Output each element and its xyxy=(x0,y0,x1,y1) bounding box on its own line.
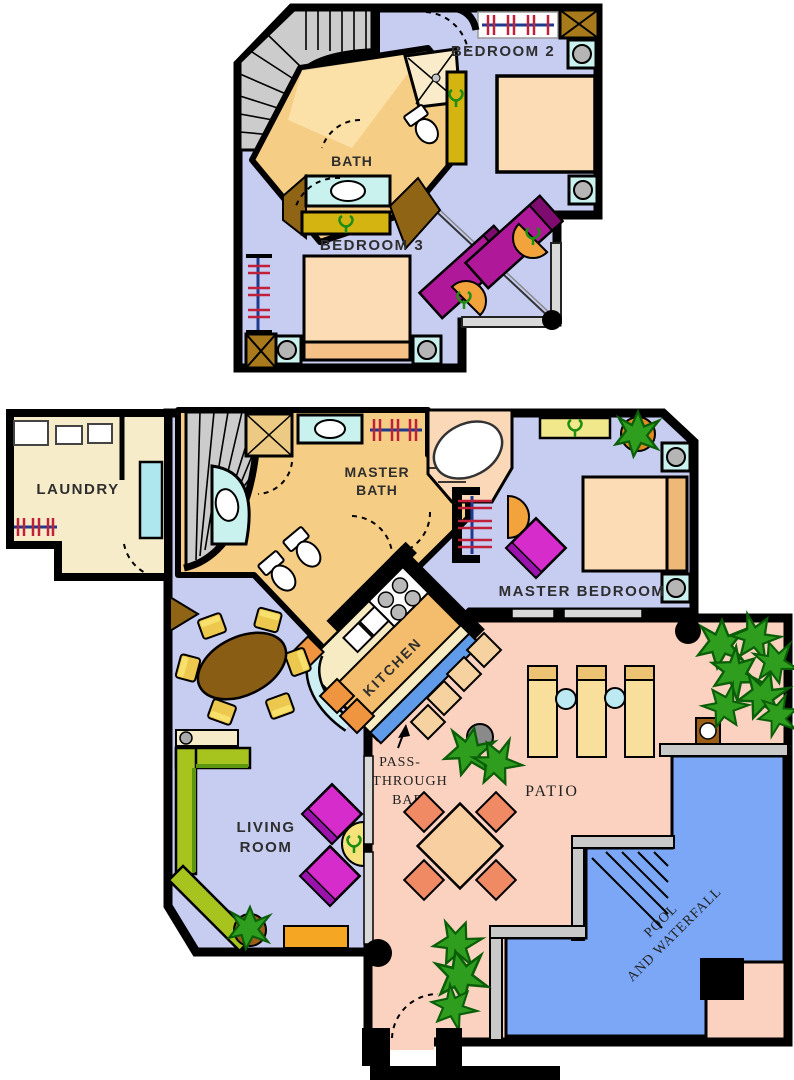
laundry: LAUNDRY xyxy=(10,413,168,578)
bed xyxy=(304,256,410,342)
side-table xyxy=(556,689,576,709)
lower-floor: POOL AND WATERFALL LAUNDRY xyxy=(10,410,794,1080)
bed xyxy=(583,477,667,571)
nightstand xyxy=(569,176,597,204)
bath-label: BATH xyxy=(331,153,373,169)
upper-floor: BATH BEDROOM 2 xyxy=(238,8,598,368)
pillar xyxy=(362,1028,390,1066)
master-bath-label-2: BATH xyxy=(356,482,398,498)
floor-plan-page: BATH BEDROOM 2 xyxy=(0,0,794,1080)
door-gap xyxy=(390,1034,434,1050)
headboard xyxy=(667,477,687,571)
dryer xyxy=(56,426,82,444)
bench-table xyxy=(284,926,348,948)
pool-pillar xyxy=(700,958,744,1000)
floor-plan-svg: BATH BEDROOM 2 xyxy=(0,0,794,1080)
nightstand xyxy=(568,40,596,68)
laundry-sink xyxy=(88,424,112,443)
pillar xyxy=(364,939,392,967)
patio-dining-set xyxy=(404,792,516,900)
bedroom3-label: BEDROOM 3 xyxy=(320,237,424,254)
pass-through-label-1: PASS- xyxy=(379,755,421,770)
bed xyxy=(497,76,595,172)
lounge-chair xyxy=(625,666,654,757)
lounge-chair xyxy=(528,666,557,757)
bottom-wall xyxy=(370,1066,560,1080)
patio-label: PATIO xyxy=(525,783,579,800)
slider-to-patio xyxy=(512,609,642,618)
living-room-label-1: LIVING xyxy=(236,819,295,836)
pillar xyxy=(675,618,701,644)
nightstand xyxy=(662,443,690,471)
pass-through-label-2: THROUGH xyxy=(372,774,447,789)
door-slab xyxy=(140,462,162,538)
laundry-label: LAUNDRY xyxy=(36,481,119,498)
master-bedroom-label: MASTER BEDROOM xyxy=(499,583,666,600)
side-table xyxy=(605,688,625,708)
bedroom2-label: BEDROOM 2 xyxy=(451,43,555,60)
master-bath-label-1: MASTER xyxy=(344,464,409,480)
armoire xyxy=(447,72,466,164)
lounge-chair xyxy=(577,666,606,757)
nightstand xyxy=(662,574,690,602)
washer xyxy=(14,421,48,445)
nightstand xyxy=(413,336,441,364)
living-room-label-2: ROOM xyxy=(240,839,293,856)
